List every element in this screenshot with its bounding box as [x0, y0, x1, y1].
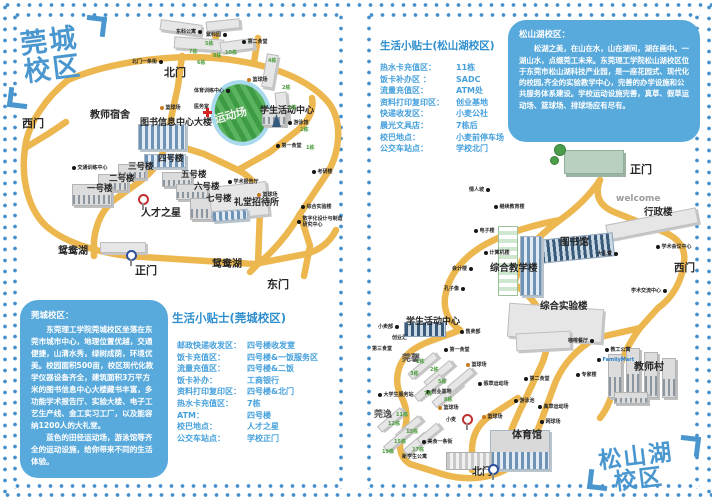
- tip-label: 热水卡充值区：: [177, 400, 247, 408]
- map-label: 篮球场: [466, 361, 487, 368]
- tip-value: 四号楼&二饭: [247, 365, 294, 373]
- dotted-border: [2, 2, 8, 498]
- map-label: 正门: [630, 161, 652, 177]
- map-label: 17栋: [412, 446, 424, 453]
- map-label: 正门: [135, 262, 157, 278]
- map-label: 2栋: [282, 84, 290, 91]
- logo-text: 校区: [22, 52, 83, 86]
- map-label: 西门: [674, 260, 695, 275]
- dotted-border: [12, 483, 342, 489]
- tip-label: 流量充值区：: [177, 365, 247, 373]
- map-label: 咖啡餐厅: [568, 337, 594, 344]
- map-label: 游泳池: [514, 397, 535, 404]
- map-label: 北门: [164, 64, 186, 80]
- tip-value: 7栋: [247, 400, 261, 408]
- tip-label: 快递收发区：: [380, 110, 456, 118]
- map-label: 美食一条街: [422, 438, 453, 445]
- campus-map-leaflet: { "colors":{"accent_blue":"#2f8fce","box…: [0, 0, 714, 500]
- tip-label: 晨光文具店：: [380, 122, 456, 130]
- tip-row: 校巴地点：人才之星: [177, 423, 342, 431]
- guancheng-intro-box: 莞城校区： 东莞理工学院莞城校区坐落在东莞市城市中心，地理位置优越，交通便捷，山…: [20, 300, 168, 478]
- map-label: 第一食堂: [276, 142, 302, 149]
- map-label: 1栋: [416, 358, 424, 365]
- poi-dot-icon: [228, 180, 232, 184]
- map-label: 篮球场: [257, 191, 278, 198]
- map-label: 鸳鸯湖: [212, 255, 242, 270]
- map-label: 二号楼: [109, 172, 135, 184]
- map-label: 8栋: [213, 52, 221, 59]
- map-label: 教师村: [634, 358, 664, 373]
- guancheng-logo: 莞城 校区: [19, 25, 83, 87]
- tip-value: 人才之星: [247, 423, 279, 431]
- map-label: 大学生服务站: [378, 391, 414, 398]
- map-label: 第二食堂: [242, 38, 268, 45]
- map-label: 2栋: [300, 126, 308, 133]
- poi-dot-icon: [482, 415, 486, 419]
- poi-dot-icon: [288, 121, 292, 125]
- map-label: 小卖部: [378, 323, 399, 330]
- building: [100, 242, 146, 253]
- poi-dot-icon: [312, 170, 316, 174]
- map-label: 5栋: [205, 40, 213, 47]
- map-label: 13栋: [406, 428, 418, 435]
- map-label: 计算机楼: [484, 249, 510, 256]
- tip-row: 流量充值区：四号楼&二饭: [177, 365, 342, 373]
- tip-value: 7栋后: [456, 122, 478, 130]
- tip-value: 小麦公社: [456, 110, 488, 118]
- poi-dot-icon: [247, 78, 251, 82]
- clinic-cross-icon: [203, 108, 212, 117]
- tip-row: 热水卡充值区：7栋: [177, 400, 342, 408]
- poi-dot-icon: [72, 166, 76, 170]
- tip-label: 公交车站点：: [177, 435, 247, 443]
- map-label: 1栋: [306, 144, 314, 151]
- guancheng-tips-title: 生活小贴士(莞城校区): [172, 310, 286, 326]
- tip-value: SADC: [456, 76, 480, 84]
- poi-dot-icon: [540, 420, 544, 424]
- map-label: 北门一条街: [132, 58, 163, 65]
- map-label: 图书馆: [560, 234, 589, 248]
- intro-paragraph: 东莞理工学院莞城校区坐落在东莞市城市中心，地理位置优越，交通便捷，山清水秀，绿树…: [31, 324, 157, 432]
- tip-label: 饭卡补办区 ：: [380, 76, 456, 84]
- tip-row: 饭卡充值区：四号楼&一饭服务区: [177, 354, 342, 362]
- poi-dot-icon: [524, 377, 528, 381]
- map-label: 综合实验楼: [301, 203, 332, 210]
- tip-value: ATM处: [456, 87, 483, 95]
- poi-dot-icon: [474, 229, 478, 233]
- map-label: 莞逸: [374, 407, 392, 420]
- map-label: 会计楼: [452, 265, 473, 272]
- bracket-decoration-icon: [85, 15, 107, 37]
- map-label: 学术报告厅: [228, 178, 259, 185]
- poi-dot-icon: [478, 382, 482, 386]
- map-label: 7栋: [424, 390, 432, 397]
- map-label: 学术交流中心: [631, 287, 667, 294]
- map-label: 3栋: [410, 370, 418, 377]
- map-label: 学生活动中心: [406, 314, 460, 327]
- dotted-border: [706, 2, 712, 498]
- map-label: 情人坡: [469, 186, 490, 193]
- poi-dot-icon: [198, 30, 202, 34]
- map-label: 专家楼: [576, 371, 597, 378]
- tip-label: 邮政快递收发区：: [177, 342, 247, 350]
- poi-dot-icon: [590, 339, 594, 343]
- map-label: 10栋: [225, 49, 237, 56]
- tip-row: 公交车站点：学校正门: [177, 435, 342, 443]
- bus-stop-pin-icon: [488, 464, 499, 475]
- poi-dot-icon: [663, 289, 667, 293]
- songshanhu-intro-box: 松山湖校区： 松湖之美，在山在水，山在湖间，湖在画中。一湖山水，点缀莞工未来。东…: [508, 20, 700, 142]
- map-label: 11栋: [396, 411, 408, 418]
- map-label: 7栋: [189, 48, 197, 55]
- bracket-decoration-icon: [679, 435, 701, 457]
- tip-value: 四号楼&一饭服务区: [247, 354, 318, 362]
- bracket-decoration-icon: [587, 469, 609, 491]
- tip-label: 流量充值区：: [380, 87, 456, 95]
- tip-value: 四号楼&北门: [247, 388, 294, 396]
- map-label: 考研楼: [312, 168, 333, 175]
- poi-dot-icon: [160, 106, 164, 110]
- intro-title: 松山湖校区：: [519, 30, 689, 41]
- map-label: 一号楼: [87, 182, 113, 194]
- map-label: 售卖部: [460, 328, 481, 335]
- map-label: 鸳鸯湖: [58, 242, 88, 257]
- poi-dot-icon: [484, 251, 488, 255]
- poi-dot-icon: [576, 373, 580, 377]
- map-label: 三号楼: [128, 160, 154, 172]
- tip-value: 四号楼收发室: [247, 342, 295, 350]
- map-label: 篮球场: [482, 413, 503, 420]
- tip-value: 创业基地: [456, 99, 488, 107]
- map-label: 综合实验楼: [540, 298, 588, 312]
- tip-label: 饭卡充值区：: [177, 354, 247, 362]
- songshanhu-map: 正门welcome行政楼图书馆西门综合教学楼综合实验楼学生活动中心莞馨莞逸体育馆…: [368, 140, 702, 488]
- bus-stop-pin-icon: [126, 250, 137, 261]
- poi-dot-icon: [460, 330, 464, 334]
- tip-row: 资料打印复印区：四号楼&北门: [177, 388, 342, 396]
- map-label: 2栋: [430, 366, 438, 373]
- intro-paragraph: 松湖之美，在山在水，山在湖间，湖在画中。一湖山水，点缀莞工未来。东莞理工学院松山…: [519, 43, 689, 111]
- map-label: 六号楼: [194, 180, 220, 192]
- map-label: 教工公寓: [605, 346, 631, 353]
- map-label: 6栋: [197, 59, 205, 66]
- poi-dot-icon: [257, 193, 261, 197]
- map-label: 篮球场: [247, 76, 268, 83]
- map-label: 紫科园: [206, 31, 227, 38]
- map-label: 8栋: [444, 396, 452, 403]
- map-label: 东科公寓: [176, 28, 202, 35]
- poi-dot-icon: [466, 363, 470, 367]
- map-label: 假草运动场: [478, 380, 509, 387]
- map-label: 篮球场: [160, 104, 181, 111]
- tip-value: 四号楼: [247, 412, 271, 420]
- map-label: 第二食堂: [524, 375, 550, 382]
- tip-label: 资料打印复印区：: [177, 388, 247, 396]
- map-label: 15栋: [394, 438, 406, 445]
- map-label: 体育馆: [512, 426, 542, 441]
- tip-value: 学校正门: [247, 435, 279, 443]
- songshanhu-tips-title: 生活小贴士(松山湖校区): [380, 38, 495, 53]
- poi-dot-icon: [301, 205, 305, 209]
- map-label: 篮球场: [438, 404, 459, 411]
- poi-dot-icon: [438, 406, 442, 410]
- poi-dot-icon: [614, 252, 618, 256]
- building: [564, 150, 624, 174]
- map-label: welcome: [616, 194, 661, 204]
- poi-dot-icon: [297, 220, 301, 224]
- poi-dot-icon: [444, 348, 448, 352]
- building: [662, 358, 676, 398]
- map-label: 4栋: [268, 57, 276, 64]
- tip-label: 校巴地点：: [177, 423, 247, 431]
- map-label: 东门: [267, 276, 289, 292]
- map-label: 小麦: [446, 416, 456, 423]
- poi-dot-icon: [469, 267, 473, 271]
- map-label: 学术会议中心: [656, 243, 692, 250]
- intro-paragraph: 蓝色的田径运动场，游泳馆等齐全的运动设施，给你带来不同的生活体验。: [31, 432, 157, 468]
- map-label: 行政楼: [644, 204, 673, 218]
- poi-dot-icon: [226, 89, 230, 93]
- tip-label: 饭卡补办：: [177, 377, 247, 385]
- map-label: 综合教学楼: [490, 260, 538, 274]
- poi-dot-icon: [422, 440, 426, 444]
- map-label: 七号楼: [206, 192, 232, 204]
- tip-label: ATM：: [177, 412, 247, 420]
- tip-value: 工商银行: [247, 377, 279, 385]
- map-label: 继续教育楼: [494, 203, 525, 210]
- map-label: 5栋: [438, 378, 446, 385]
- building: [550, 156, 559, 165]
- tip-value: 11栋: [456, 64, 475, 72]
- poi-dot-icon: [378, 393, 382, 397]
- map-label: 图书信息中心大楼: [140, 115, 212, 128]
- poi-dot-icon: [538, 405, 542, 409]
- map-label: 真草运动场: [538, 403, 569, 410]
- tip-label: 热水卡充值区：: [380, 64, 456, 72]
- map-label: 网球场: [540, 418, 561, 425]
- building: [516, 331, 572, 352]
- map-label: 孔子像: [444, 285, 465, 292]
- poi-dot-icon: [486, 188, 490, 192]
- poi-dot-icon: [159, 60, 163, 64]
- map-label: 第一食堂: [444, 346, 470, 353]
- poi-dot-icon: [461, 287, 465, 291]
- bracket-decoration-icon: [7, 87, 29, 109]
- poi-dot-icon: [605, 348, 609, 352]
- poi-dot-icon: [514, 399, 518, 403]
- dotted-border: [366, 12, 700, 18]
- map-label: 大礼堂: [597, 250, 618, 257]
- bus-stop-pin-icon: [462, 414, 473, 425]
- songshanhu-logo: 松山湖 校区: [597, 442, 677, 498]
- map-label: 第三食堂: [372, 345, 392, 352]
- map-label: FamilyMart: [597, 357, 634, 363]
- map-label: 1栋: [288, 104, 296, 111]
- poi-dot-icon: [276, 144, 280, 148]
- tip-row: ATM：四号楼: [177, 412, 342, 420]
- map-label: 西门: [22, 115, 44, 131]
- map-label: 交通训练中心: [72, 164, 108, 171]
- poi-dot-icon: [242, 40, 246, 44]
- map-label: 创业汇: [392, 334, 407, 341]
- building: [614, 392, 648, 404]
- map-label: 四号楼: [158, 152, 184, 164]
- poi-dot-icon: [494, 205, 498, 209]
- tip-label: 资料打印复印区：: [380, 99, 456, 107]
- map-label: 学生活动中心: [260, 103, 314, 116]
- map-label: 游泳馆: [288, 119, 309, 126]
- building: [626, 348, 640, 398]
- map-label: 数字化设计与制造研究中心: [297, 216, 343, 228]
- building: [554, 144, 566, 156]
- poi-dot-icon: [656, 245, 660, 249]
- map-label: 新学生公寓: [402, 453, 427, 460]
- map-label: 电子楼: [474, 227, 495, 234]
- intro-title: 莞城校区：: [31, 310, 157, 322]
- map-label: 人才之星: [141, 204, 181, 219]
- map-label: 12栋: [388, 420, 400, 427]
- guancheng-tips-list: 邮政快递收发区：四号楼收发室饭卡充值区：四号楼&一饭服务区流量充值区：四号楼&二…: [177, 342, 342, 446]
- tip-row: 邮政快递收发区：四号楼收发室: [177, 342, 342, 350]
- tip-row: 饭卡补办：工商银行: [177, 377, 342, 385]
- map-label: 19栋: [382, 448, 394, 455]
- map-label: 体育训练中心: [194, 87, 230, 94]
- poi-dot-icon: [395, 325, 399, 329]
- map-label: 教师宿舍: [90, 106, 130, 121]
- map-label: 五号楼: [181, 168, 207, 180]
- bus-stop-pin-icon: [138, 194, 149, 205]
- dotted-border: [2, 2, 712, 8]
- poi-dot-icon: [223, 33, 227, 37]
- poi-dot-icon: [597, 358, 601, 362]
